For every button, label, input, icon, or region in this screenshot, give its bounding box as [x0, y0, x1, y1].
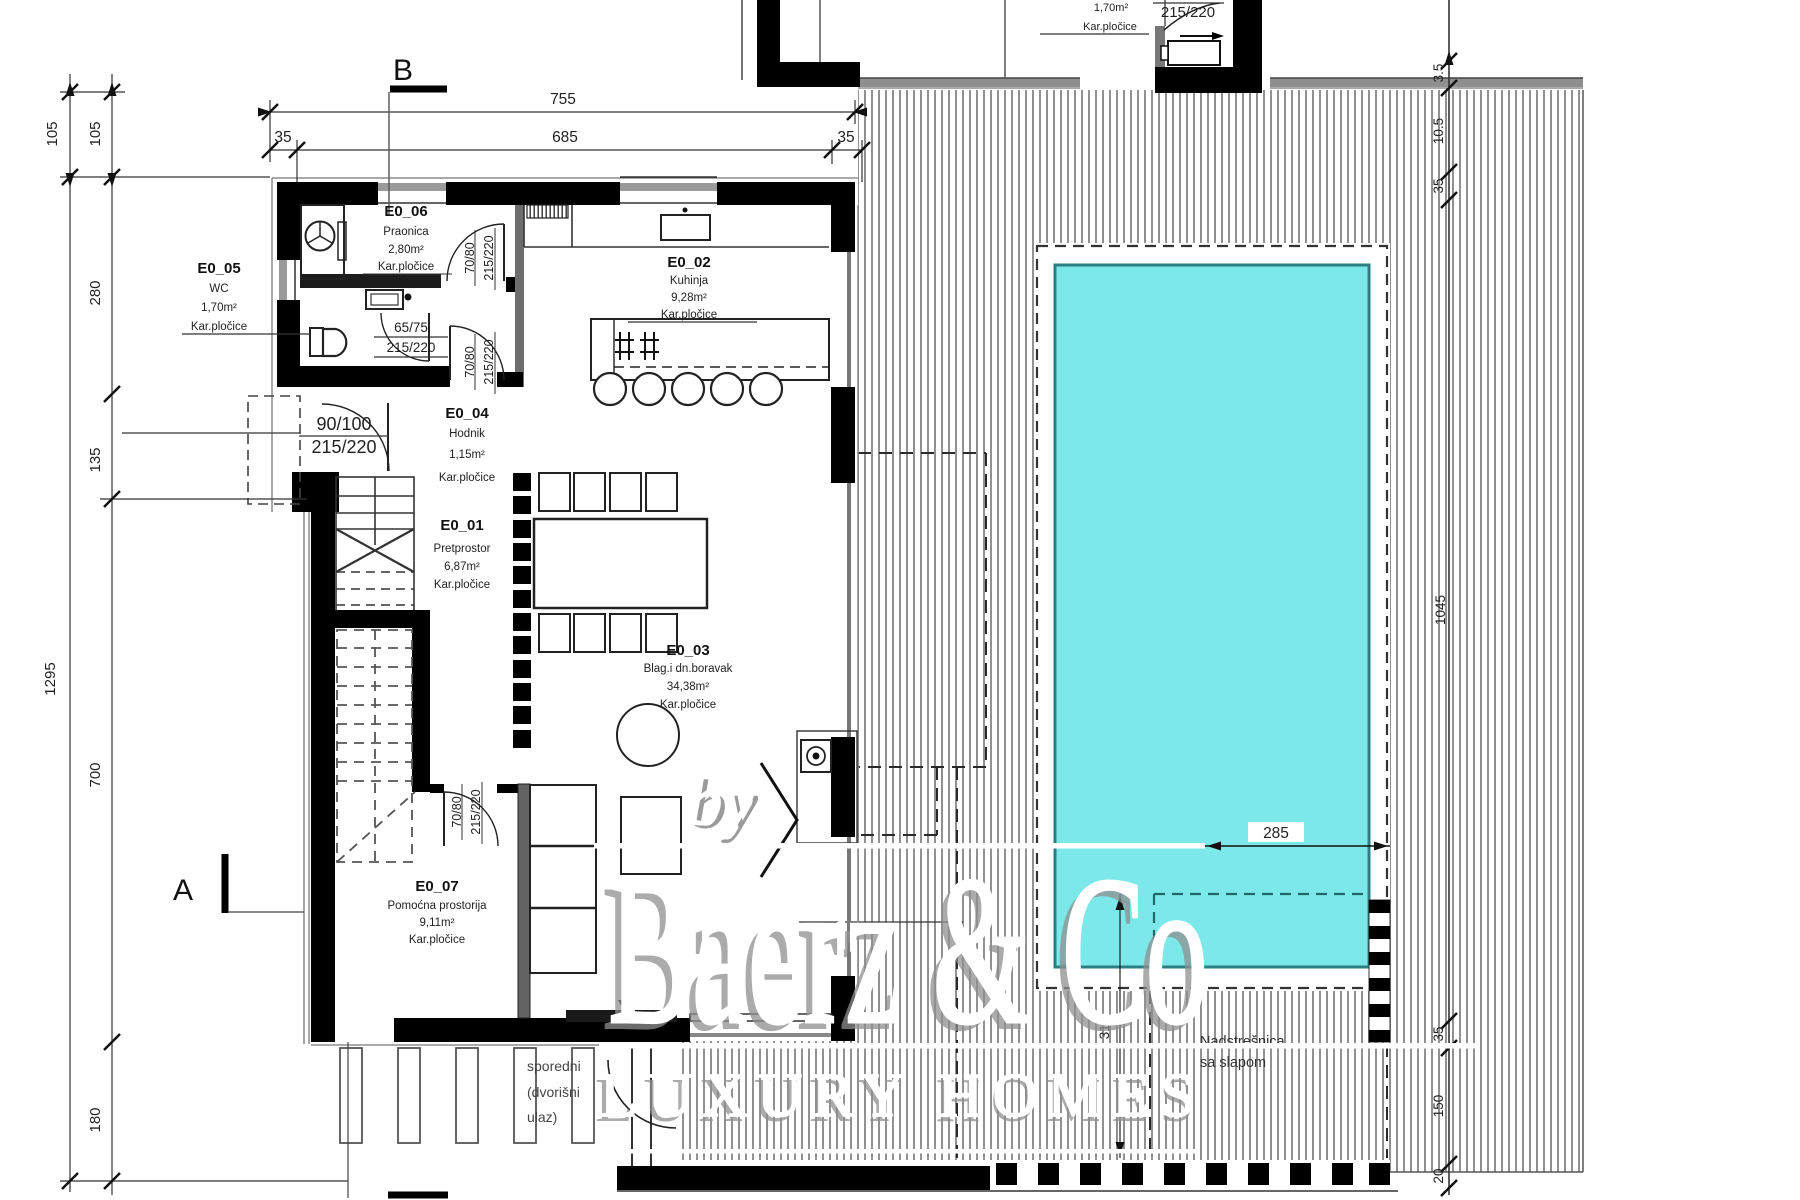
svg-text:90/100: 90/100 — [316, 414, 371, 434]
svg-text:B: B — [393, 54, 413, 87]
svg-text:by: by — [687, 763, 754, 840]
svg-text:sporedni: sporedni — [527, 1058, 581, 1074]
svg-text:215/220: 215/220 — [482, 235, 496, 280]
svg-text:E0_06: E0_06 — [384, 203, 427, 220]
svg-text:215/220: 215/220 — [482, 339, 496, 384]
svg-text:1,70m²: 1,70m² — [201, 302, 237, 314]
svg-text:Kuhinja: Kuhinja — [670, 275, 709, 287]
svg-text:3.5: 3.5 — [1431, 64, 1446, 83]
svg-text:215/220: 215/220 — [311, 437, 376, 457]
svg-text:ulaz): ulaz) — [527, 1109, 557, 1125]
svg-text:1295: 1295 — [42, 662, 59, 695]
svg-text:35: 35 — [837, 129, 854, 146]
svg-text:35: 35 — [1431, 178, 1446, 193]
svg-text:35: 35 — [1431, 1026, 1446, 1041]
svg-text:2,80m²: 2,80m² — [388, 244, 424, 256]
svg-text:685: 685 — [552, 129, 578, 146]
svg-text:E0_04: E0_04 — [445, 405, 489, 422]
svg-text:105: 105 — [44, 121, 61, 146]
svg-text:9,28m²: 9,28m² — [671, 292, 707, 304]
svg-text:1045: 1045 — [1433, 595, 1448, 625]
svg-text:Kar.pločice: Kar.pločice — [191, 321, 247, 333]
svg-text:Kar.pločice: Kar.pločice — [660, 699, 716, 711]
svg-text:6,87m²: 6,87m² — [444, 561, 480, 573]
svg-text:E0_03: E0_03 — [666, 642, 709, 659]
svg-text:Pretprostor: Pretprostor — [434, 543, 491, 555]
svg-text:150: 150 — [1431, 1095, 1446, 1118]
svg-text:Pomoćna prostorija: Pomoćna prostorija — [387, 900, 487, 912]
svg-text:755: 755 — [550, 91, 576, 108]
svg-text:35: 35 — [274, 129, 291, 146]
svg-text:Kar.pločice: Kar.pločice — [661, 309, 717, 321]
svg-text:215/220: 215/220 — [387, 340, 436, 355]
svg-text:E0_02: E0_02 — [667, 254, 710, 271]
svg-text:Kar.pločice: Kar.pločice — [439, 472, 495, 484]
svg-text:(dvorišni: (dvorišni — [527, 1084, 580, 1100]
svg-text:280: 280 — [87, 280, 104, 305]
svg-text:105: 105 — [87, 121, 104, 146]
svg-text:Blag.i dn.boravak: Blag.i dn.boravak — [644, 663, 733, 675]
svg-text:sa slapom: sa slapom — [1200, 1055, 1266, 1071]
svg-text:A: A — [173, 874, 193, 907]
svg-text:Baerz & Co: Baerz & Co — [608, 832, 1208, 1068]
svg-text:215/220: 215/220 — [469, 789, 483, 834]
svg-text:34,38m²: 34,38m² — [667, 681, 709, 693]
svg-text:Praonica: Praonica — [383, 226, 429, 238]
svg-text:700: 700 — [87, 762, 104, 787]
svg-text:65/75: 65/75 — [394, 320, 428, 335]
svg-text:285: 285 — [1263, 825, 1289, 842]
svg-text:Hodnik: Hodnik — [449, 428, 485, 440]
svg-text:E0_05: E0_05 — [197, 260, 240, 277]
svg-text:E0_07: E0_07 — [415, 878, 458, 895]
svg-text:9,11m²: 9,11m² — [420, 917, 455, 929]
svg-text:215/220: 215/220 — [1161, 4, 1215, 21]
svg-text:Kar.pločice: Kar.pločice — [378, 261, 434, 273]
svg-text:20: 20 — [1431, 1168, 1446, 1183]
svg-text:1,70m²: 1,70m² — [1094, 2, 1129, 14]
svg-text:Kar.pločice: Kar.pločice — [409, 934, 465, 946]
svg-text:E0_01: E0_01 — [440, 517, 483, 534]
svg-text:180: 180 — [87, 1107, 104, 1132]
svg-text:Kar.pločice: Kar.pločice — [1083, 21, 1137, 33]
svg-text:WC: WC — [209, 283, 228, 295]
svg-text:1,15m²: 1,15m² — [449, 449, 485, 461]
svg-text:Kar.pločice: Kar.pločice — [434, 579, 490, 591]
svg-text:10.5: 10.5 — [1431, 118, 1446, 144]
svg-text:135: 135 — [87, 447, 104, 472]
